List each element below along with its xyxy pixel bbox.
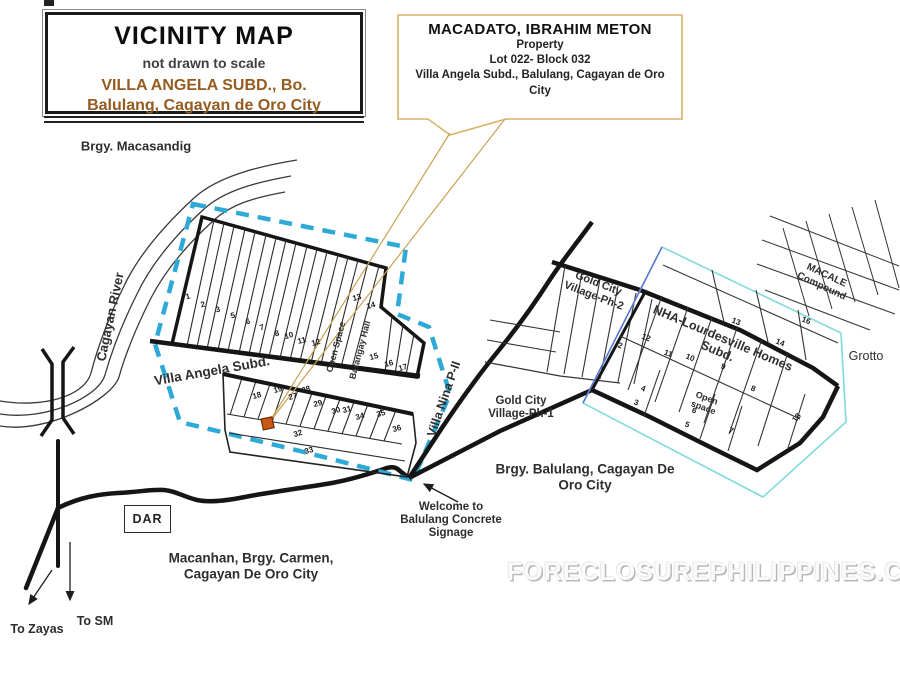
property-owner: MACADATO, IBRAHIM METON <box>399 21 681 38</box>
vicinity-map-page: Brgy. MacasandigCagayan RiverVilla Angel… <box>0 0 900 688</box>
property-type: Property <box>399 38 681 53</box>
map-title: VICINITY MAP <box>48 22 360 51</box>
property-address: Villa Angela Subd., Balulang, Cagayan de… <box>399 68 681 98</box>
balulang-lower-road <box>409 386 838 478</box>
map-location: VILLA ANGELA SUBD., Bo. Balulang, Cagaya… <box>48 76 360 116</box>
property-marker <box>261 417 274 430</box>
direction-arrows <box>29 484 458 604</box>
macale-compound-hatch <box>757 200 899 330</box>
callout-pointer-lines <box>268 119 505 424</box>
scan-artifact <box>44 0 54 6</box>
villa-nina-road <box>409 222 592 478</box>
welcome-signage-arrow <box>424 484 458 502</box>
property-lot-block: Lot 022- Block 032 <box>399 53 681 68</box>
property-callout: MACADATO, IBRAHIM METON Property Lot 022… <box>399 21 681 99</box>
title-box: VICINITY MAP not drawn to scale VILLA AN… <box>45 12 363 114</box>
dar-office-box: DAR <box>124 505 171 533</box>
gold-city-boundary-road <box>485 362 620 383</box>
villa-angela-blocks <box>150 217 424 477</box>
dar-label: DAR <box>132 512 162 526</box>
roads-southwest <box>26 441 409 588</box>
watermark: FORECLOSUREPHILIPPINES.COM <box>507 558 897 587</box>
map-scale-note: not drawn to scale <box>48 55 360 71</box>
